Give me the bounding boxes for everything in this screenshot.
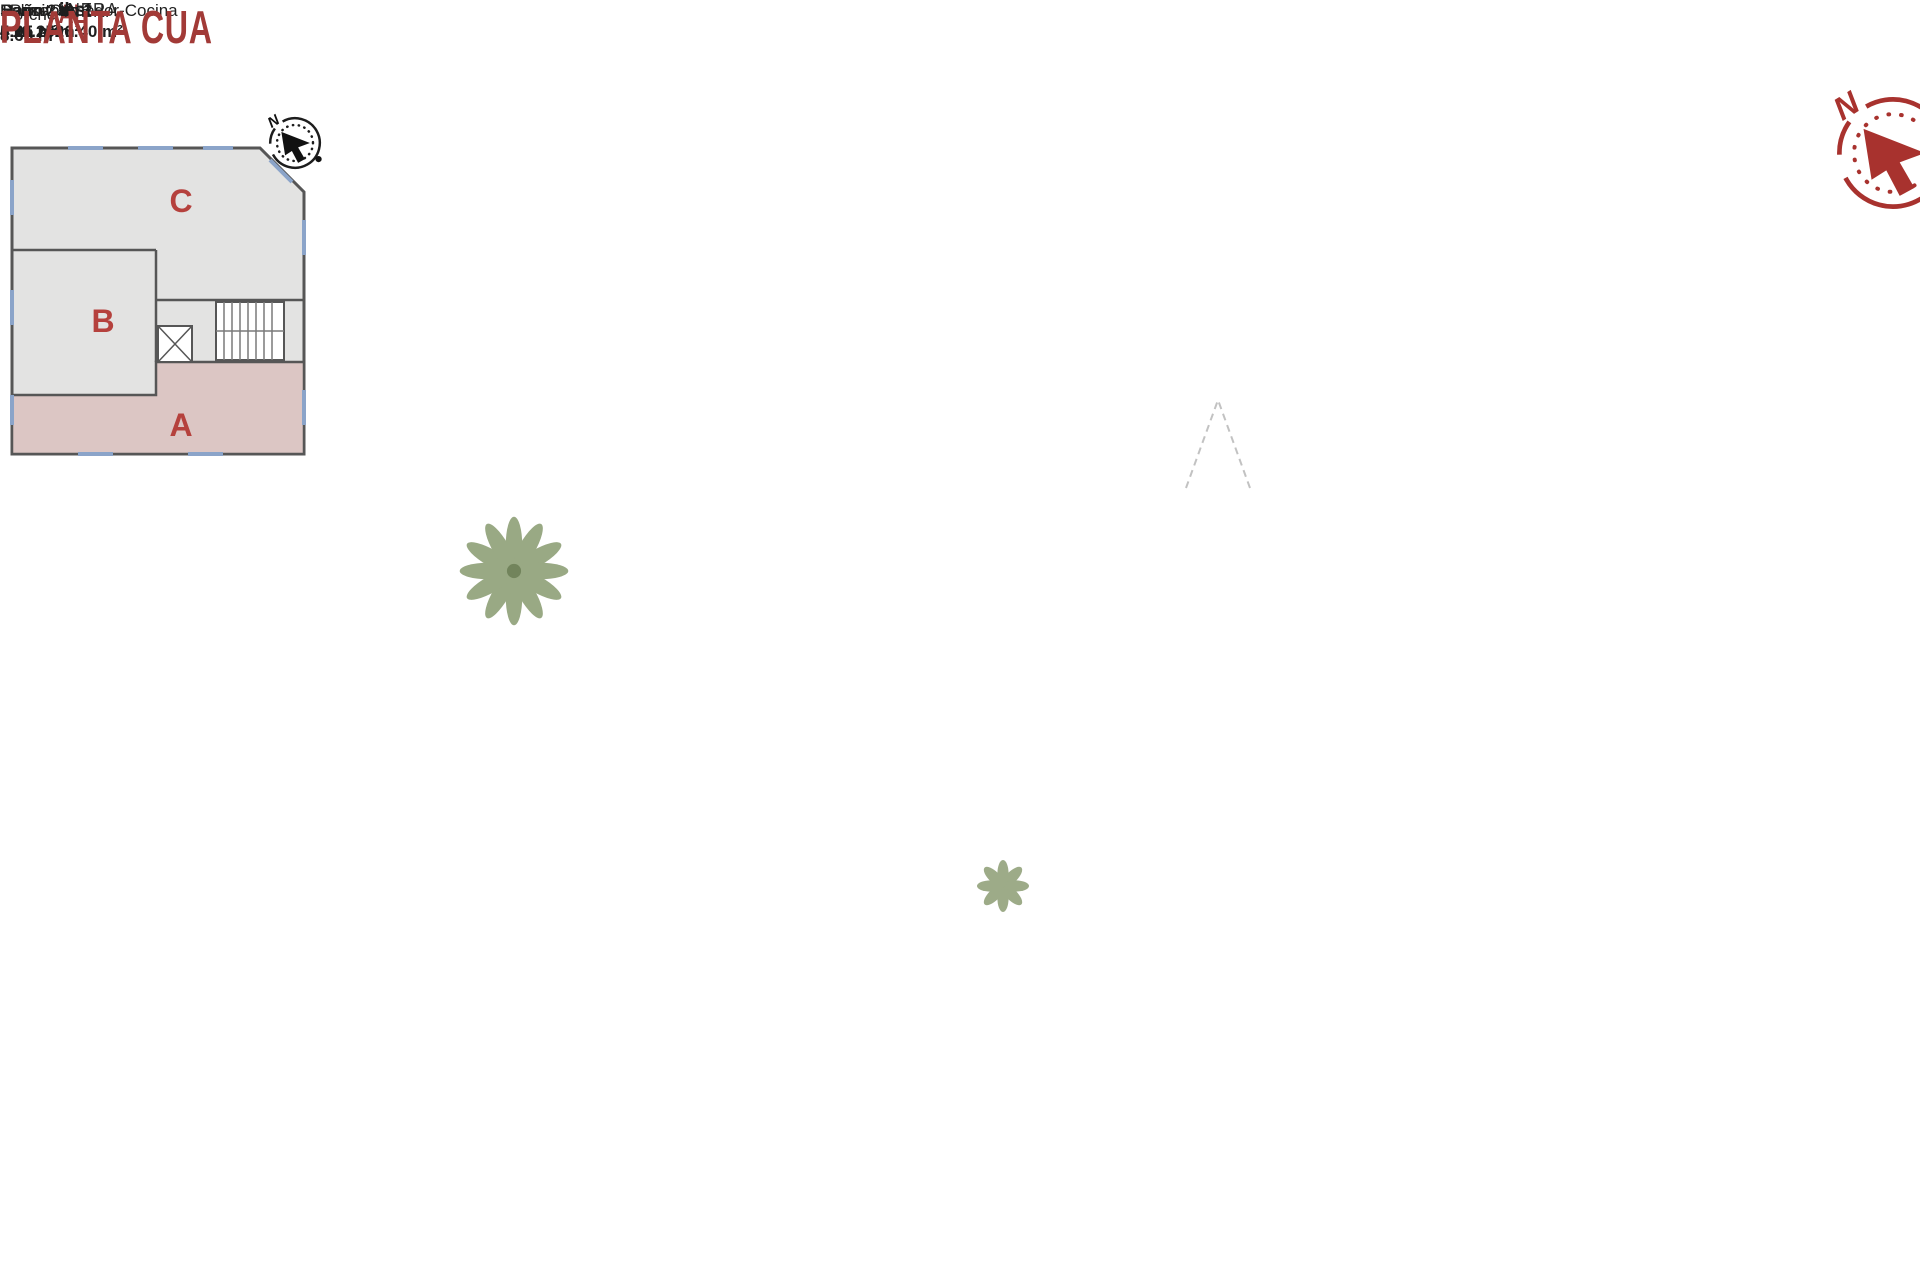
- compass-n-label: N: [265, 112, 283, 131]
- shower-mark: [1178, 392, 1258, 492]
- site-plan-diagram: C B A: [8, 140, 320, 462]
- north-compass-icon-red: N: [1826, 86, 1920, 220]
- indoor-plant: [972, 855, 1034, 917]
- compass-dot: [315, 156, 321, 162]
- plan-caption: PLANTA CUA: [0, 0, 213, 54]
- compass-n-label: N: [1827, 86, 1866, 127]
- unit-a-label: A: [169, 407, 192, 443]
- palm-tree: [455, 512, 573, 630]
- plan-sheet: ENERAL C B A N MEDIANERA VA: [0, 0, 1920, 1280]
- north-compass-icon: N: [264, 112, 326, 174]
- unit-c-label: C: [169, 183, 192, 219]
- compass-arrow: [1864, 129, 1920, 196]
- unit-b-label: B: [91, 303, 114, 339]
